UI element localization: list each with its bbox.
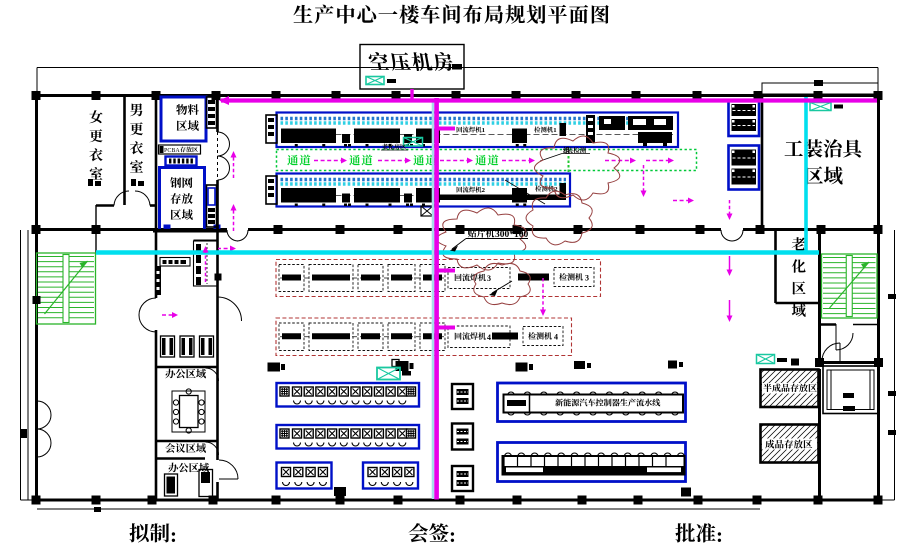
- svg-text:1: 1: [482, 127, 485, 134]
- svg-text::: :: [170, 523, 177, 547]
- svg-text:PCBA: PCBA: [164, 148, 180, 154]
- svg-text:1: 1: [553, 127, 556, 134]
- svg-text::: :: [449, 523, 456, 547]
- svg-text:4: 4: [554, 333, 558, 342]
- svg-text:3: 3: [487, 274, 491, 283]
- svg-text:3: 3: [585, 274, 589, 283]
- svg-text::: :: [716, 523, 723, 547]
- svg-text:4: 4: [487, 333, 491, 342]
